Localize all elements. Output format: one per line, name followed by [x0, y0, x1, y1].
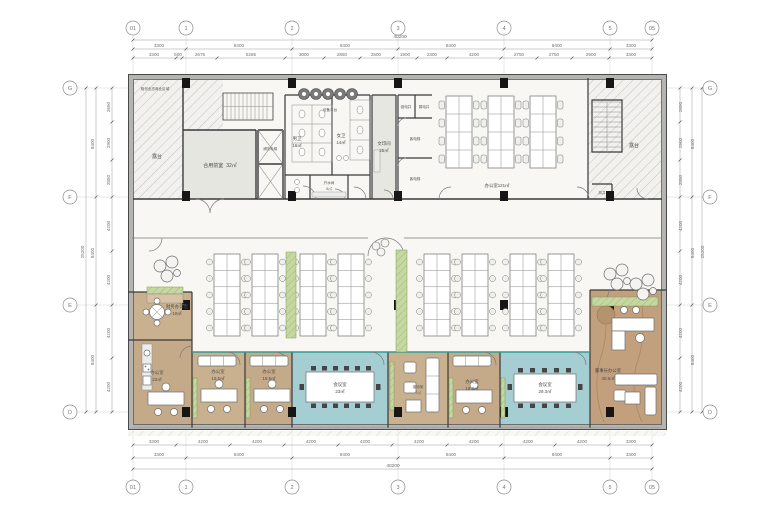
- dim: 500: [174, 52, 182, 57]
- dim: 4200: [106, 381, 111, 392]
- grid-row-label: G: [68, 86, 72, 92]
- dim: 3300: [626, 452, 637, 457]
- womens-wc-area: 14㎡: [336, 139, 346, 145]
- meeting-29-area: 29.3㎡: [539, 388, 553, 394]
- dim: 2650: [678, 101, 683, 112]
- office-c-label: 办公室: [465, 378, 479, 385]
- meeting-23-area: 23㎡: [335, 388, 345, 394]
- lift2-label: 客电梯: [410, 176, 421, 181]
- water-room-label: 开水间: [324, 180, 335, 185]
- dim: 4200: [360, 439, 371, 444]
- dim: 8400: [690, 247, 695, 258]
- grid-col-label: 5: [608, 485, 611, 491]
- meeting-29-furniture: [508, 368, 583, 408]
- dim: 8400: [90, 138, 95, 149]
- print-room-floor: [372, 95, 396, 199]
- dim: 4200: [306, 439, 317, 444]
- grid-col-label: 01: [130, 485, 136, 491]
- terrace-left-floor: [130, 76, 183, 199]
- dim: 2750: [514, 52, 525, 57]
- dim: 3300: [154, 452, 165, 457]
- room-area: 32㎡: [226, 162, 237, 169]
- grid-row-label: G: [708, 86, 712, 92]
- grid-col-label: 01: [130, 26, 136, 32]
- floor-plan-svg: 40200 3300 8400 8400 8400 8400 3300 3300…: [0, 0, 780, 520]
- dim-top: 40200 3300 8400 8400 8400 8400 3300 3300…: [149, 34, 637, 57]
- room-name: 办公室: [485, 182, 499, 189]
- weak-shaft-label: 弱电井: [419, 104, 430, 109]
- dim: 8400: [90, 354, 95, 365]
- reception-area: 7㎡: [415, 390, 421, 395]
- equipment-platform-units: [299, 89, 358, 100]
- grid-col-label: 2: [290, 26, 293, 32]
- dim: 2300: [427, 52, 438, 57]
- dim: 2675: [195, 52, 206, 57]
- dim: 4200: [252, 439, 263, 444]
- dim: 4200: [106, 220, 111, 231]
- dim: 4200: [106, 274, 111, 285]
- office-b-label: 办公室: [262, 368, 276, 375]
- dim-bottom: 3300 4200 4200 4200 4200 4200 4200 4200 …: [149, 439, 637, 469]
- grid-col-label: 05: [649, 485, 655, 491]
- dim: 8400: [90, 247, 95, 258]
- dim: 3300: [626, 52, 637, 57]
- office-open-top-label: 办公室121㎡: [485, 182, 511, 189]
- grid-col-label: 1: [184, 26, 187, 32]
- dim: 4200: [106, 327, 111, 338]
- dim: 3300: [626, 439, 637, 444]
- dim: 3300: [626, 43, 637, 48]
- room-area: 121㎡: [498, 182, 510, 188]
- dim: 8400: [690, 138, 695, 149]
- dim: 4200: [678, 327, 683, 338]
- dim: 8400: [446, 452, 457, 457]
- dim: 8400: [446, 43, 457, 48]
- strong-shaft-label: 强电井: [401, 104, 412, 109]
- grid-row-label: F: [708, 195, 712, 201]
- dim: 3300: [154, 43, 165, 48]
- dim: 8400: [552, 452, 563, 457]
- lift1-label: 客电梯: [410, 136, 421, 141]
- terrace-left-label: 露台: [152, 153, 162, 160]
- top-office-desks: [439, 96, 563, 168]
- dim: 2750: [549, 52, 560, 57]
- floor-plan-page: 40200 3300 8400 8400 8400 8400 3300 3300…: [0, 0, 780, 520]
- grid-col-label: 2: [290, 485, 293, 491]
- room-name: 合用前室: [203, 162, 223, 169]
- office-a-area: 19.5㎡: [212, 375, 226, 381]
- grid-row-label: D: [68, 410, 72, 416]
- dim: 2850: [678, 174, 683, 185]
- office-c-area: 18.3㎡: [466, 385, 480, 391]
- wind-shaft-label: 风井: [598, 190, 606, 195]
- dim: 4200: [577, 439, 588, 444]
- dim: 8400: [340, 452, 351, 457]
- dim: 4200: [523, 439, 534, 444]
- dim: 8400: [552, 43, 563, 48]
- dim: 4200: [678, 274, 683, 285]
- dim: 3000: [299, 52, 310, 57]
- reception-label: 接待室: [413, 384, 424, 389]
- terrace-right-floor: [588, 76, 666, 199]
- office-b-area: 19.5㎡: [263, 375, 277, 381]
- dim: 1900: [400, 52, 411, 57]
- dim: 8400: [234, 452, 245, 457]
- fire-lift-label: 消防电梯: [263, 146, 278, 151]
- finance-office-label: 财务办公室: [166, 303, 189, 310]
- grid-col-label: 4: [502, 485, 505, 491]
- water-room-area: 5㎡: [326, 186, 332, 191]
- dim: 25200: [700, 245, 705, 258]
- grid-col-label: 1: [184, 485, 187, 491]
- grid-col-label: 4: [502, 26, 505, 32]
- finance-office-area: 10㎡: [172, 310, 182, 316]
- womens-wc-label: 女卫: [337, 132, 346, 139]
- dim: 4200: [198, 439, 209, 444]
- dim: 4200: [414, 439, 425, 444]
- dim: 8400: [340, 43, 351, 48]
- office-a-label: 办公室: [211, 368, 225, 375]
- grid-row-label: F: [68, 195, 72, 201]
- dim: 8400: [234, 43, 245, 48]
- adjacent-note-label: 相邻业态商业区域: [141, 86, 170, 91]
- grid-row-label: E: [68, 303, 72, 309]
- dim: 5285: [246, 52, 257, 57]
- dim: 3300: [149, 52, 160, 57]
- office-22-area: 22㎡: [152, 376, 162, 382]
- chairman-office-label: 董事长办公室: [595, 367, 622, 374]
- meeting-23-furniture: [300, 366, 381, 408]
- dim-bottom-outer: 40200: [386, 463, 400, 469]
- mens-wc-area: 16㎡: [292, 142, 302, 148]
- grid-col-label: 3: [396, 26, 399, 32]
- dim: 4200: [469, 439, 480, 444]
- dim: 3300: [149, 439, 160, 444]
- chairman-office-area: 40.5㎡: [602, 375, 616, 381]
- dim: 8400: [690, 354, 695, 365]
- dim: 4200: [678, 381, 683, 392]
- terrace-right-label: 露台: [629, 142, 639, 149]
- meeting-29-label: 会议室: [538, 381, 552, 388]
- dim: 2650: [106, 101, 111, 112]
- grid-col-label: 5: [608, 26, 611, 32]
- dim: 2900: [106, 137, 111, 148]
- grid-col-label: 3: [396, 485, 399, 491]
- dim-left: 25200 8400 8400 8400 2650 2900 2850 4200…: [80, 101, 111, 392]
- dim: 2850: [337, 52, 348, 57]
- grid-row-label: E: [708, 303, 712, 309]
- dim: 4200: [678, 220, 683, 231]
- print-room-area: 25㎡: [379, 147, 389, 153]
- dim: 25200: [80, 245, 85, 258]
- dim: 2900: [678, 137, 683, 148]
- equipment-platform-label: 设备平台: [323, 107, 338, 112]
- office-22-label: 办公室: [150, 369, 164, 376]
- grid-col-label: 05: [649, 26, 655, 32]
- dim: 2900: [586, 52, 597, 57]
- grid-row-label: D: [708, 410, 712, 416]
- dim: 2850: [106, 174, 111, 185]
- dim-right: 25200 8400 8400 8400 2650 2900 2850 4200…: [678, 101, 705, 392]
- meeting-23-label: 会议室: [333, 381, 347, 388]
- print-room-label: 文印间: [377, 140, 390, 147]
- shared-lobby-label: 合用前室32㎡: [203, 162, 237, 169]
- dim: 2500: [371, 52, 382, 57]
- dim: 4200: [469, 52, 480, 57]
